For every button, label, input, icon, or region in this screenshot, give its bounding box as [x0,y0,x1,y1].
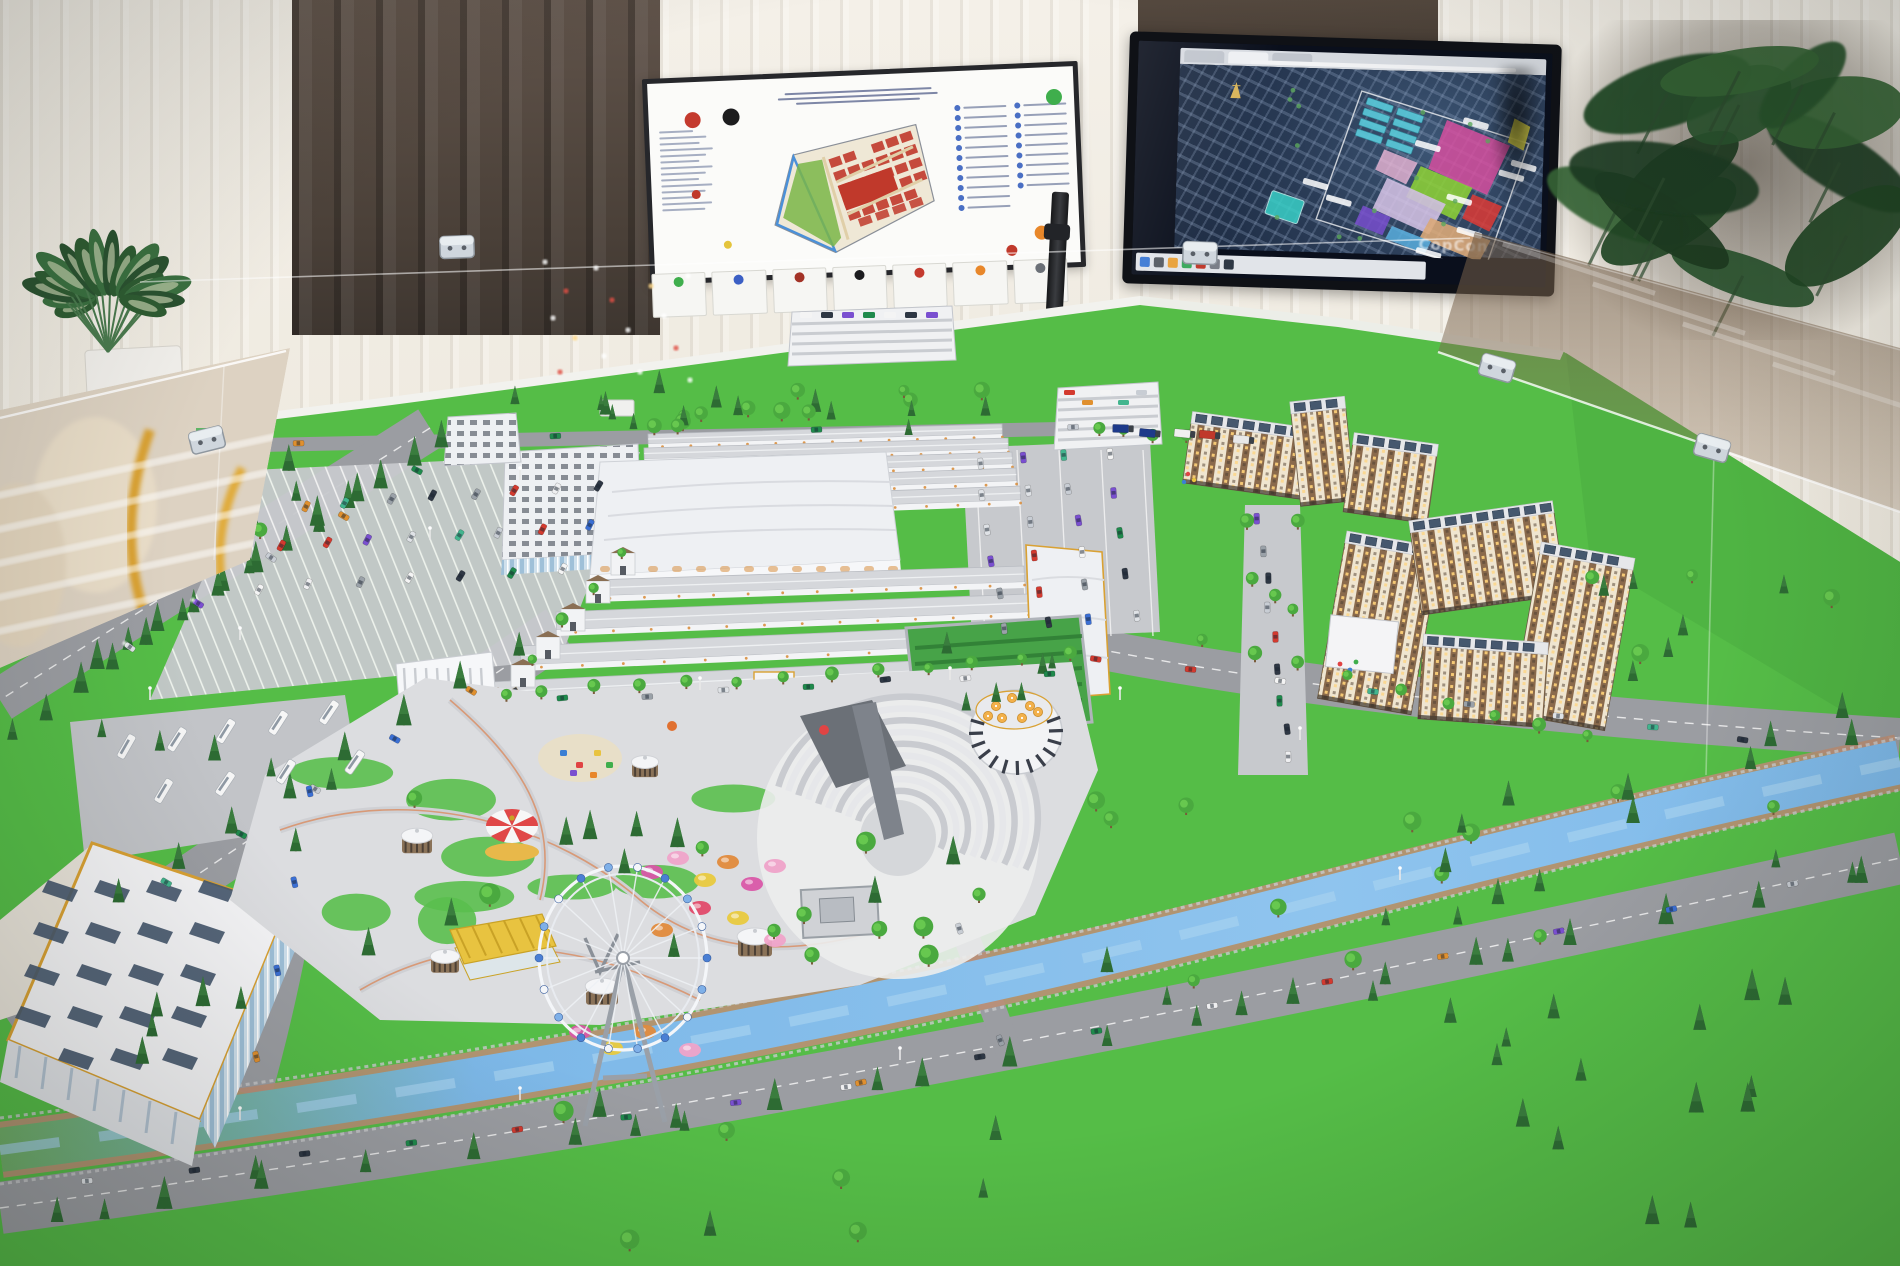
scale-model-scene [0,0,1900,1266]
showroom-photo: CopCon [0,0,1900,1266]
